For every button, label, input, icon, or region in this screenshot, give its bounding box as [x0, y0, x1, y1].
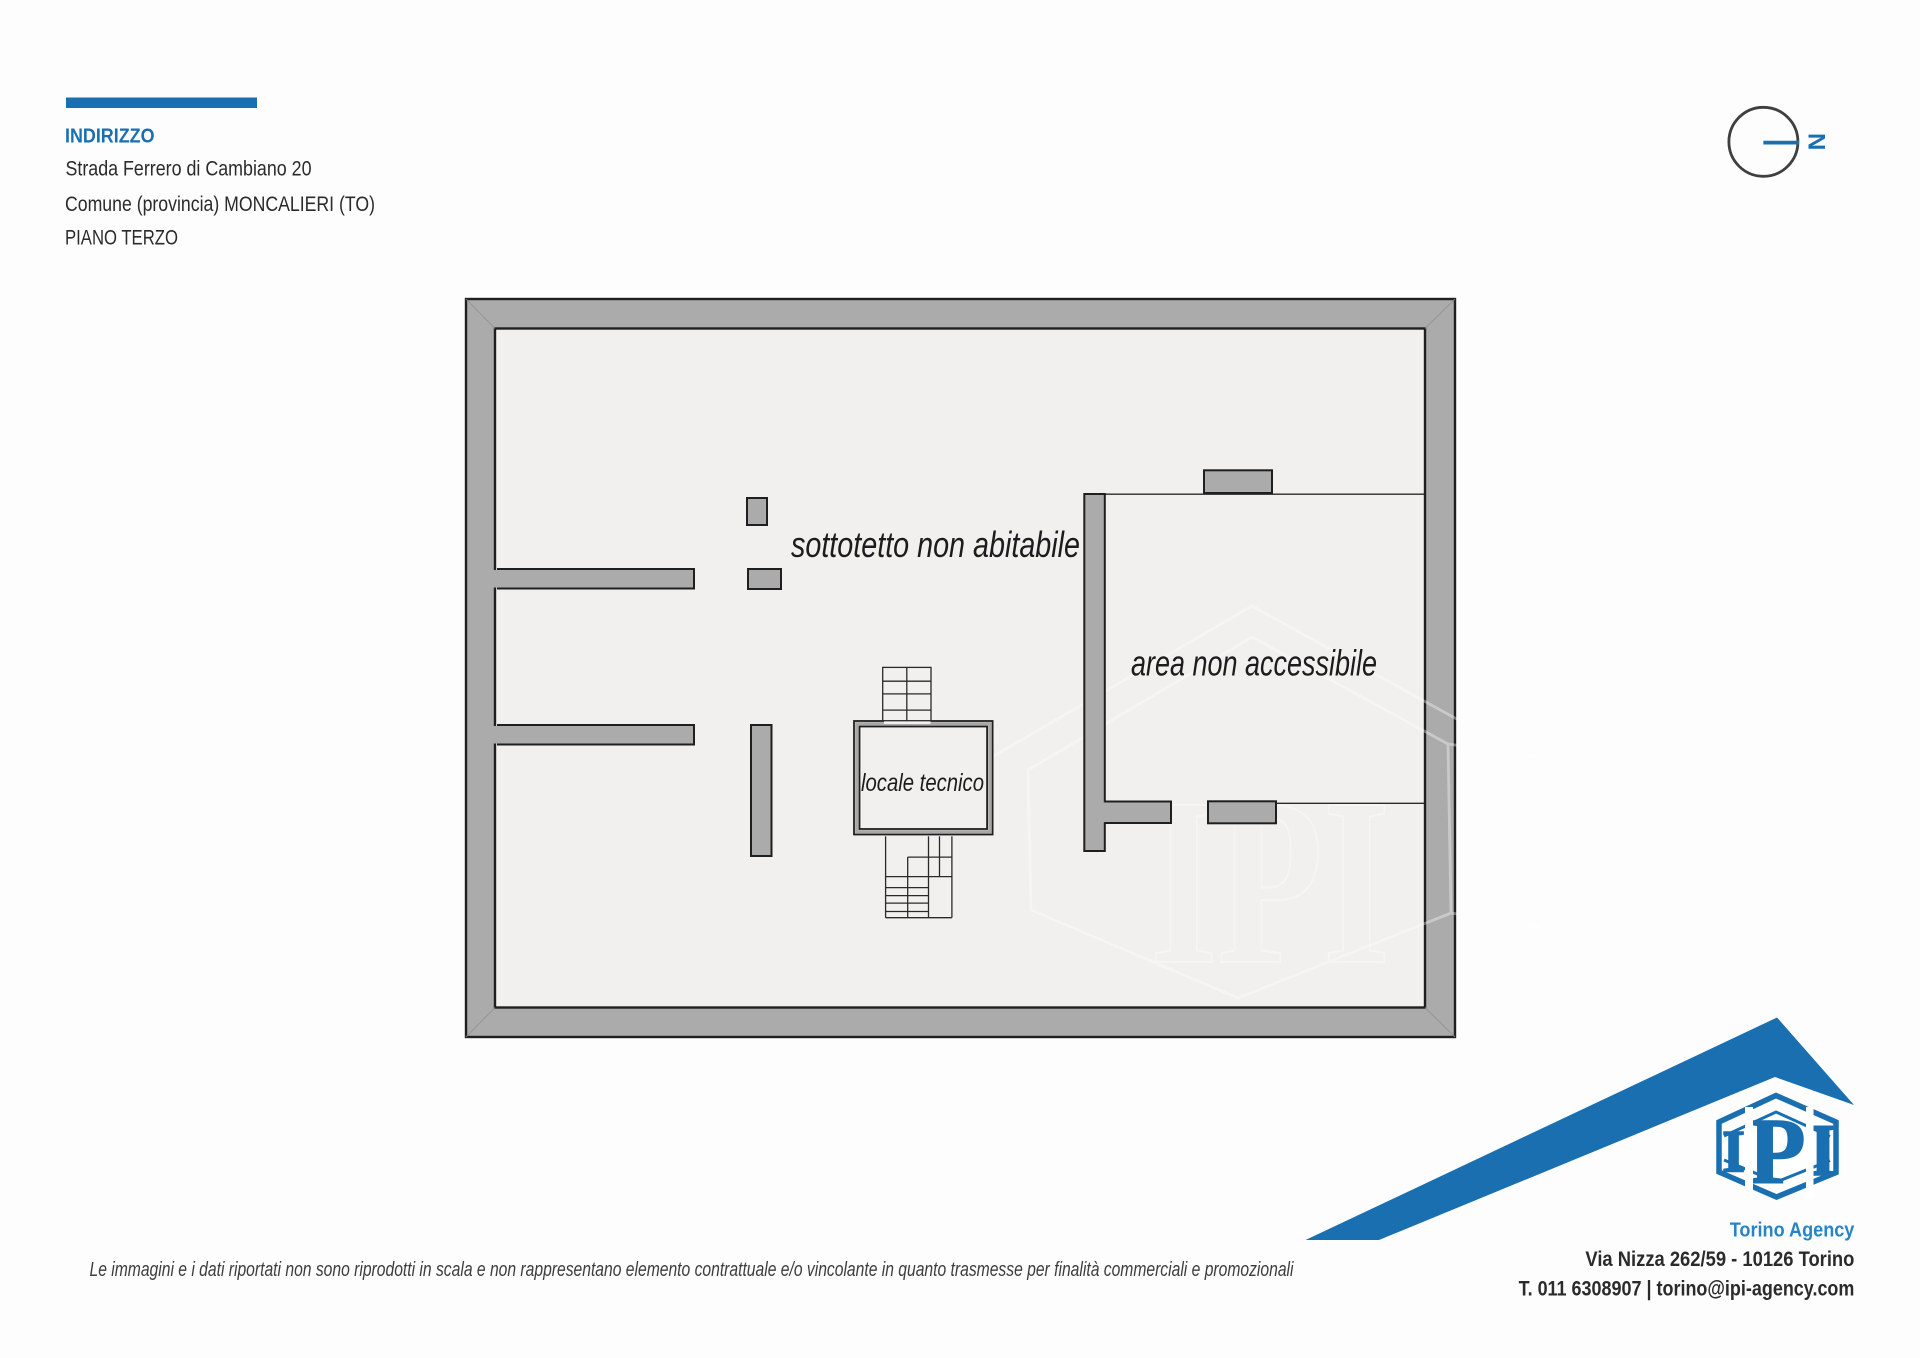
svg-text:IPI: IPI	[1150, 748, 1390, 1014]
svg-text:INDIRIZZO: INDIRIZZO	[65, 125, 155, 147]
svg-text:sottotetto non abitabile: sottotetto non abitabile	[791, 524, 1080, 565]
svg-text:locale tecnico: locale tecnico	[861, 769, 984, 797]
svg-text:T. 011 6308907 | torino@ipi-ag: T. 011 6308907 | torino@ipi-agency.com	[1519, 1277, 1855, 1300]
svg-text:Comune (provincia) MONCALIERI: Comune (provincia) MONCALIERI (TO)	[65, 192, 375, 216]
svg-text:P: P	[1748, 1100, 1805, 1204]
svg-text:Torino Agency: Torino Agency	[1730, 1219, 1855, 1241]
svg-text:Strada Ferrero di Cambiano 20: Strada Ferrero di Cambiano 20	[66, 157, 312, 181]
svg-text:Le immagini e i dati riportati: Le immagini e i dati riportati non sono …	[90, 1258, 1295, 1281]
svg-text:PIANO TERZO: PIANO TERZO	[65, 225, 178, 249]
svg-text:area non accessibile: area non accessibile	[1131, 643, 1377, 684]
svg-text:N: N	[1803, 133, 1830, 150]
svg-text:I: I	[1722, 1119, 1745, 1185]
svg-text:Via Nizza 262/59 - 10126 Torin: Via Nizza 262/59 - 10126 Torino	[1585, 1248, 1854, 1271]
